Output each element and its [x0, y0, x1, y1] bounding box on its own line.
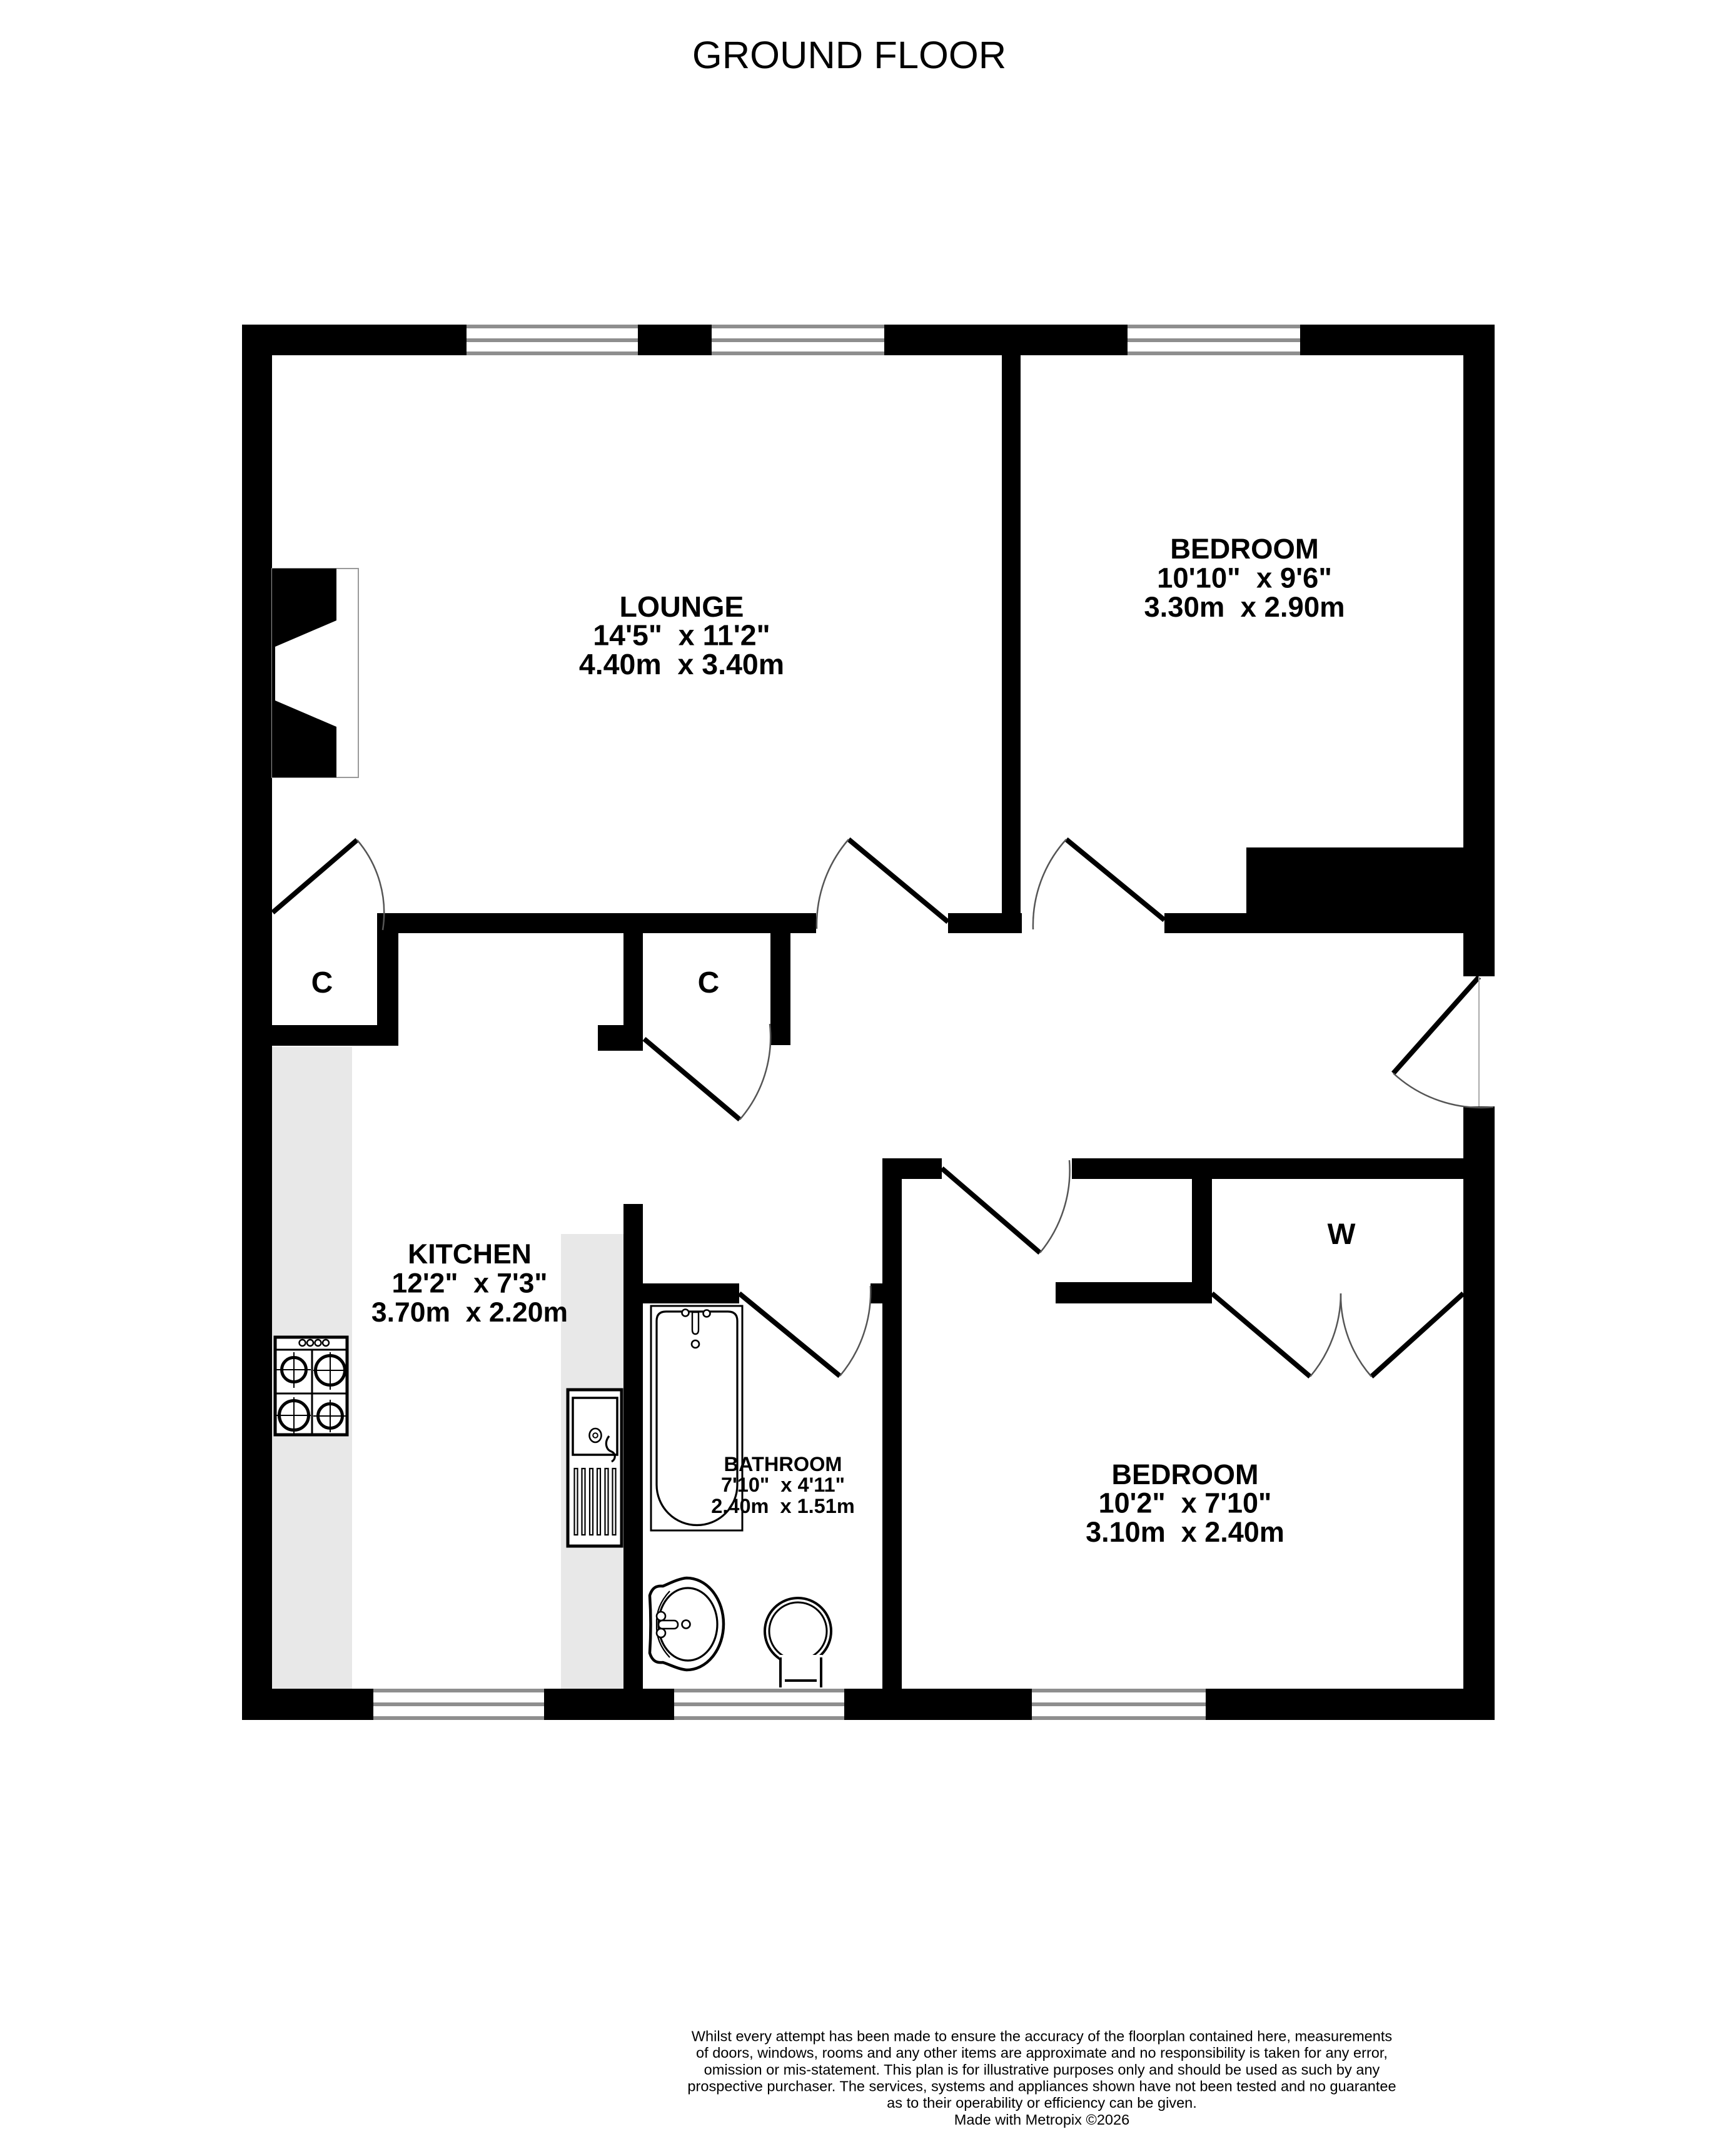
- svg-text:12'2" x 7'3": 12'2" x 7'3": [392, 1268, 548, 1299]
- svg-text:BATHROOM: BATHROOM: [724, 1453, 842, 1475]
- svg-text:as to their operability or eff: as to their operability or efficiency ca…: [887, 2095, 1197, 2111]
- svg-text:W: W: [1328, 1218, 1356, 1251]
- svg-text:4.40m x 3.40m: 4.40m x 3.40m: [579, 648, 784, 680]
- svg-text:prospective purchaser. The ser: prospective purchaser. The services, sys…: [687, 2078, 1396, 2095]
- svg-text:2.40m x 1.51m: 2.40m x 1.51m: [711, 1495, 854, 1517]
- svg-text:BEDROOM: BEDROOM: [1170, 533, 1319, 565]
- svg-text:3.10m x 2.40m: 3.10m x 2.40m: [1086, 1516, 1284, 1548]
- svg-text:7'10" x 4'11": 7'10" x 4'11": [721, 1474, 845, 1496]
- svg-text:3.30m x 2.90m: 3.30m x 2.90m: [1144, 591, 1345, 623]
- svg-text:GROUND FLOOR: GROUND FLOOR: [692, 34, 1006, 77]
- svg-text:10'2" x 7'10": 10'2" x 7'10": [1099, 1487, 1272, 1519]
- svg-text:LOUNGE: LOUNGE: [620, 590, 744, 623]
- svg-text:Made with Metropix ©2026: Made with Metropix ©2026: [954, 2111, 1129, 2128]
- svg-text:3.70m x 2.20m: 3.70m x 2.20m: [371, 1297, 568, 1328]
- svg-text:C: C: [698, 966, 720, 999]
- svg-text:Whilst every attempt has been: Whilst every attempt has been made to en…: [692, 2028, 1392, 2045]
- svg-text:KITCHEN: KITCHEN: [408, 1239, 532, 1270]
- svg-text:14'5" x 11'2": 14'5" x 11'2": [593, 619, 770, 652]
- svg-text:BEDROOM: BEDROOM: [1112, 1459, 1259, 1490]
- svg-text:C: C: [311, 966, 333, 999]
- svg-text:of doors, windows, rooms and a: of doors, windows, rooms and any other i…: [696, 2045, 1388, 2061]
- svg-text:10'10" x 9'6": 10'10" x 9'6": [1157, 562, 1332, 594]
- svg-text:omission or mis-statement. Thi: omission or mis-statement. This plan is …: [704, 2061, 1380, 2078]
